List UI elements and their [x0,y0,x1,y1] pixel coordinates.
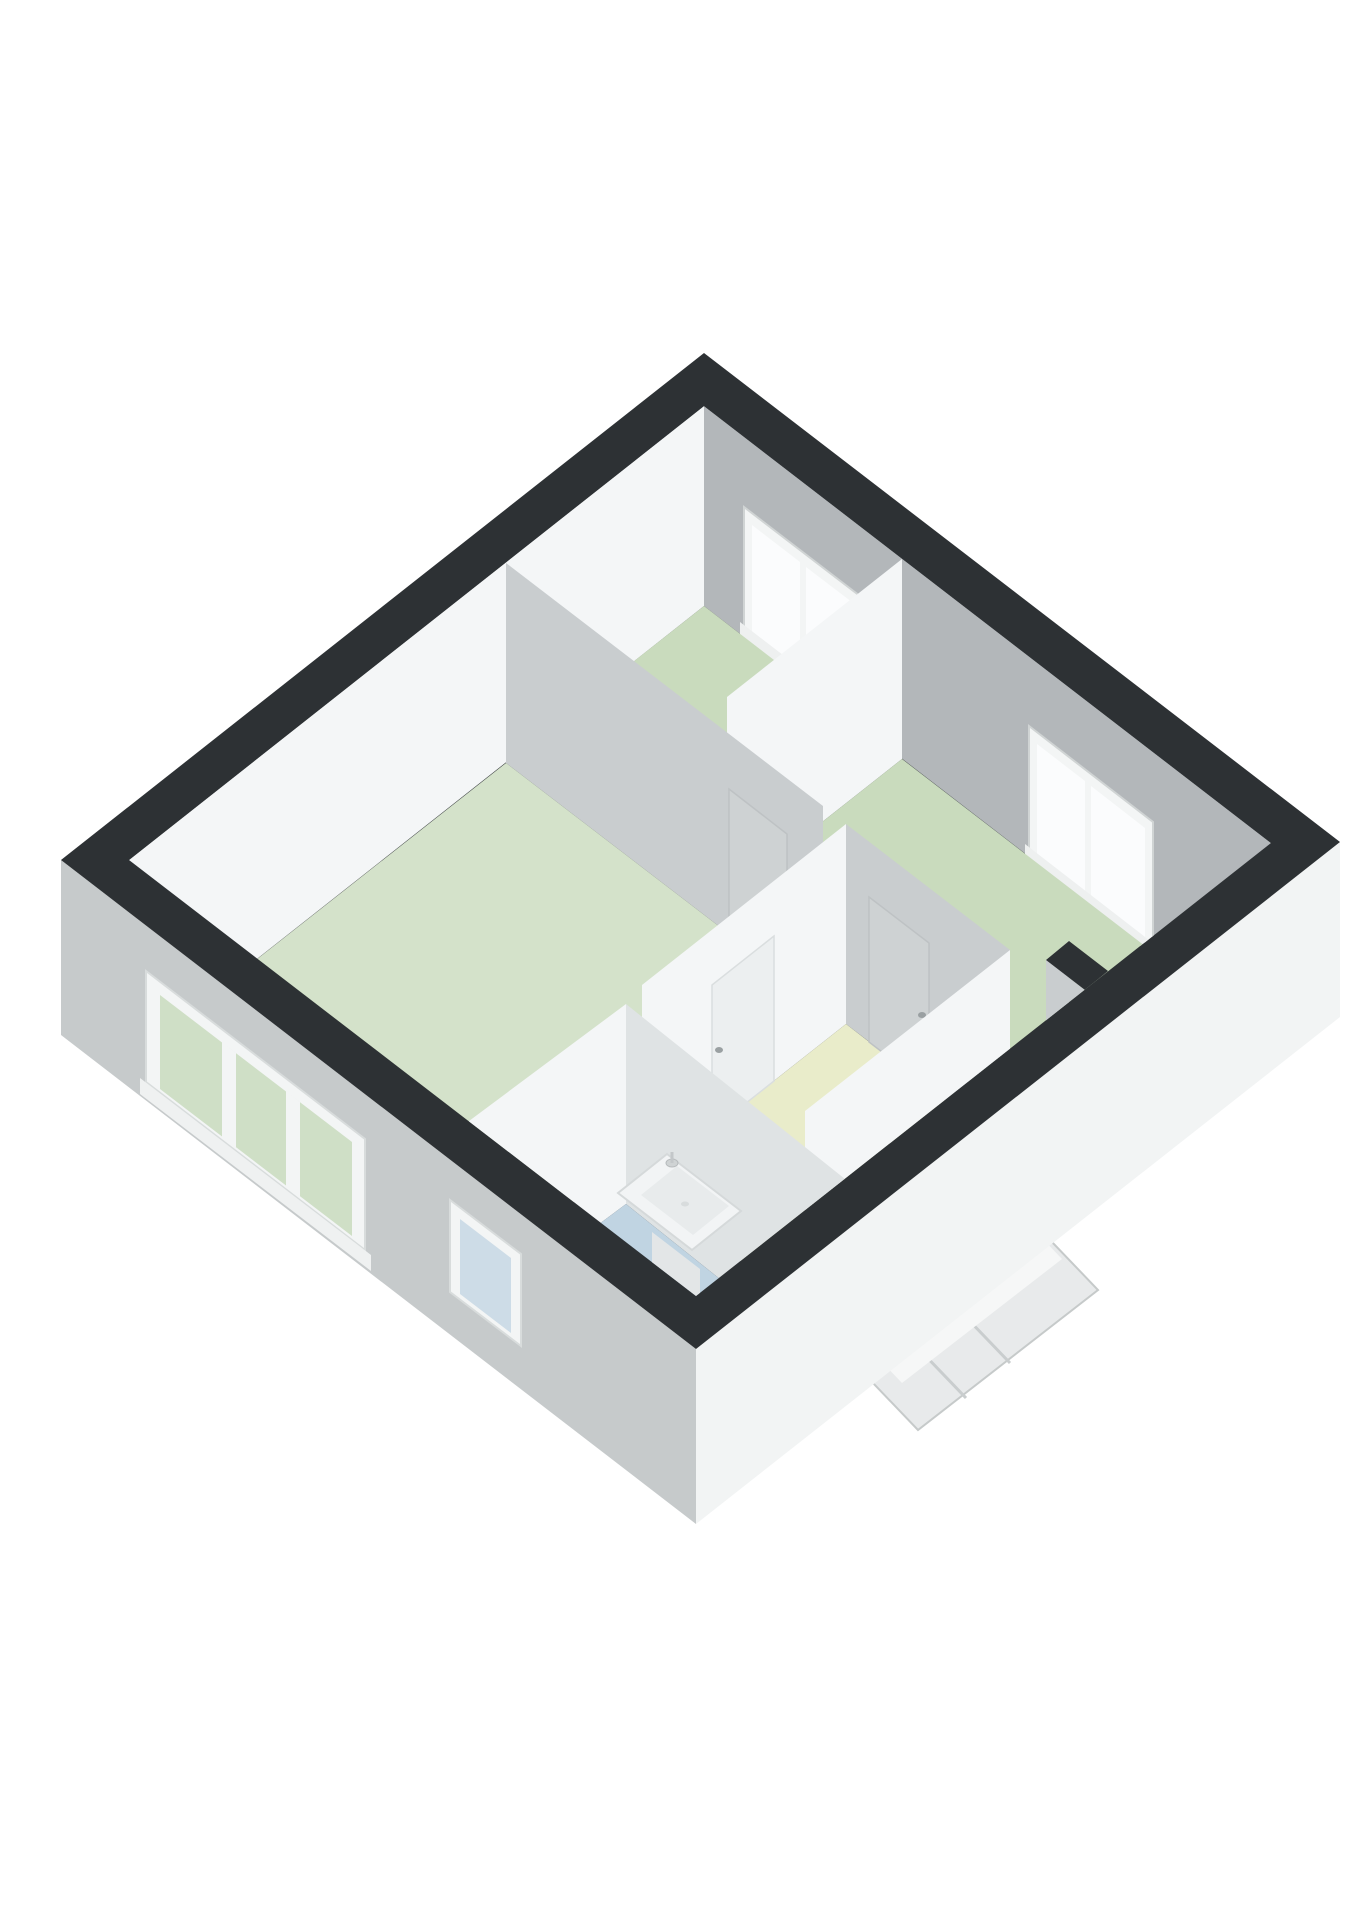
door-handle [715,1047,723,1053]
window-mullion [222,1042,236,1148]
floorplan-canvas [0,0,1358,1920]
floorplan-3d-render [0,0,1358,1920]
sink-drain [681,1202,689,1207]
window-mullion [286,1091,300,1197]
